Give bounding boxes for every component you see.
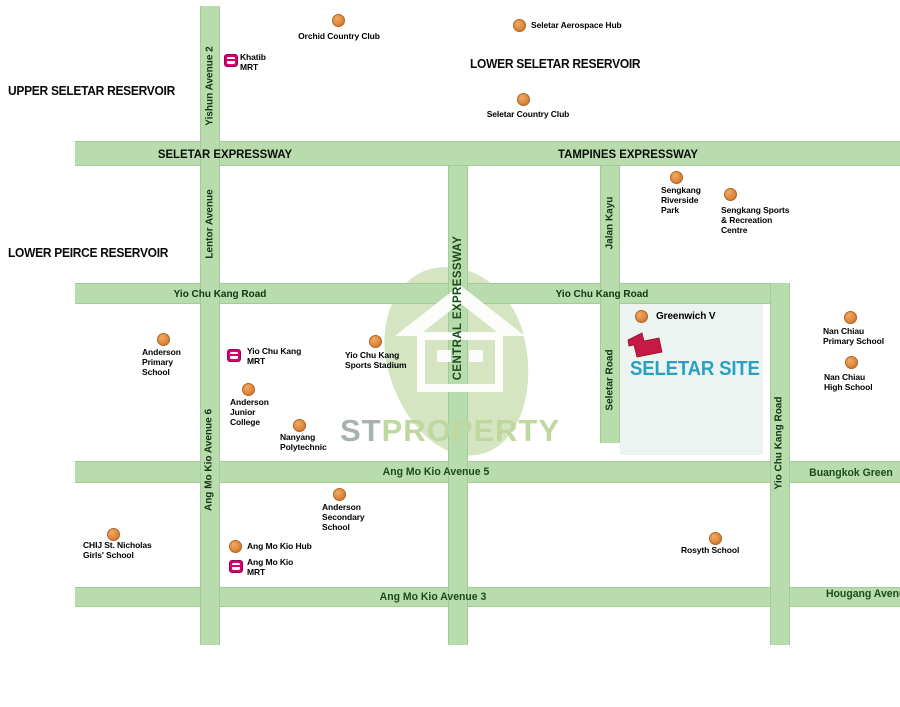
- wordmark-property: PROPERTY: [382, 413, 561, 448]
- upper-seletar-reservoir-label: UPPER SELETAR RESERVOIR: [8, 84, 175, 98]
- poi-dot-seletar-country-club: [517, 93, 530, 106]
- poi-dot-anderson-secondary-school: [333, 488, 346, 501]
- yio-chu-kang-road-east-label: Yio Chu Kang Road: [556, 288, 649, 300]
- poi-label-seletar-aerospace-hub: Seletar Aerospace Hub: [531, 21, 622, 31]
- poi-dot-rosyth-school: [709, 532, 722, 545]
- yio-chu-kang-road-west-label: Yio Chu Kang Road: [174, 288, 267, 300]
- poi-label-nanyang-polytechnic: Nanyang Polytechnic: [280, 433, 327, 453]
- yishun-avenue-2-label: Yishun Avenue 2: [205, 46, 216, 125]
- poi-label-anderson-secondary-school: Anderson Secondary School: [322, 503, 365, 533]
- seletar-site-location-map: STPROPERTY UPPER SELETAR RESERVOIR LOWER…: [0, 0, 900, 707]
- seletar-site-label: SELETAR SITE: [630, 358, 760, 381]
- mrt-icon-khatib: [224, 54, 238, 67]
- poi-dot-yio-chu-kang-sports-stadium: [369, 335, 382, 348]
- poi-label-sengkang-sports-recreation-centre: Sengkang Sports & Recreation Centre: [721, 206, 789, 236]
- stproperty-wordmark: STPROPERTY: [340, 413, 560, 449]
- ang-mo-kio-avenue-6-label: Ang Mo Kio Avenue 6: [204, 409, 215, 511]
- mrt-label-ang-mo-kio: Ang Mo Kio MRT: [247, 558, 293, 578]
- poi-label-rosyth-school: Rosyth School: [681, 546, 739, 556]
- mrt-icon-ang-mo-kio: [229, 560, 243, 573]
- poi-label-anderson-junior-college: Anderson Junior College: [230, 398, 269, 428]
- mrt-icon-yio-chu-kang: [227, 349, 241, 362]
- ang-mo-kio-avenue-3-label: Ang Mo Kio Avenue 3: [380, 591, 487, 603]
- central-expressway-label: CENTRAL EXPRESSWAY: [452, 236, 464, 381]
- mrt-train-glyph: [232, 563, 240, 570]
- lentor-avenue-label: Lentor Avenue: [205, 189, 216, 258]
- poi-dot-sengkang-sports-recreation-centre: [724, 188, 737, 201]
- poi-label-orchid-country-club: Orchid Country Club: [296, 32, 382, 42]
- mrt-label-yio-chu-kang: Yio Chu Kang MRT: [247, 347, 301, 367]
- poi-dot-anderson-junior-college: [242, 383, 255, 396]
- poi-label-seletar-country-club: Seletar Country Club: [481, 110, 575, 120]
- poi-dot-nan-chiau-primary-school: [844, 311, 857, 324]
- lower-seletar-reservoir-label: LOWER SELETAR RESERVOIR: [470, 57, 640, 71]
- poi-dot-seletar-aerospace-hub: [513, 19, 526, 32]
- tampines-expressway-label: TAMPINES EXPRESSWAY: [558, 147, 698, 161]
- poi-dot-orchid-country-club: [332, 14, 345, 27]
- mrt-label-khatib: Khatib MRT: [240, 53, 266, 73]
- poi-dot-ang-mo-kio-hub: [229, 540, 242, 553]
- seletar-road-label: Seletar Road: [605, 349, 616, 410]
- poi-label-nan-chiau-primary-school: Nan Chiau Primary School: [823, 327, 884, 347]
- jalan-kayu-label: Jalan Kayu: [605, 197, 616, 250]
- seletar-site-marker: [625, 330, 670, 360]
- poi-dot-anderson-primary-school: [157, 333, 170, 346]
- poi-dot-nan-chiau-high-school: [845, 356, 858, 369]
- poi-label-chij-st-nicholas-girls-school: CHIJ St. Nicholas Girls' School: [83, 541, 152, 561]
- poi-label-ang-mo-kio-hub: Ang Mo Kio Hub: [247, 542, 312, 552]
- poi-dot-nanyang-polytechnic: [293, 419, 306, 432]
- poi-label-yio-chu-kang-sports-stadium: Yio Chu Kang Sports Stadium: [345, 351, 406, 371]
- buangkok-green-label: Buangkok Green: [809, 467, 893, 479]
- poi-label-sengkang-riverside-park: Sengkang Riverside Park: [661, 186, 701, 216]
- poi-label-anderson-primary-school: Anderson Primary School: [142, 348, 181, 378]
- wordmark-st: ST: [340, 413, 382, 448]
- ang-mo-kio-avenue-5-label: Ang Mo Kio Avenue 5: [383, 466, 490, 478]
- yio-chu-kang-road-south-label: Yio Chu Kang Road: [774, 397, 785, 490]
- mrt-train-glyph: [227, 57, 235, 64]
- mrt-train-glyph: [230, 352, 238, 359]
- lower-peirce-reservoir-label: LOWER PEIRCE RESERVOIR: [8, 246, 168, 260]
- hougang-avenue-label: Hougang Avenue: [826, 588, 900, 600]
- poi-label-nan-chiau-high-school: Nan Chiau High School: [824, 373, 872, 393]
- poi-label-greenwich-v: Greenwich V: [656, 311, 715, 323]
- poi-dot-sengkang-riverside-park: [670, 171, 683, 184]
- seletar-expressway-label: SELETAR EXPRESSWAY: [158, 147, 292, 161]
- poi-dot-greenwich-v: [635, 310, 648, 323]
